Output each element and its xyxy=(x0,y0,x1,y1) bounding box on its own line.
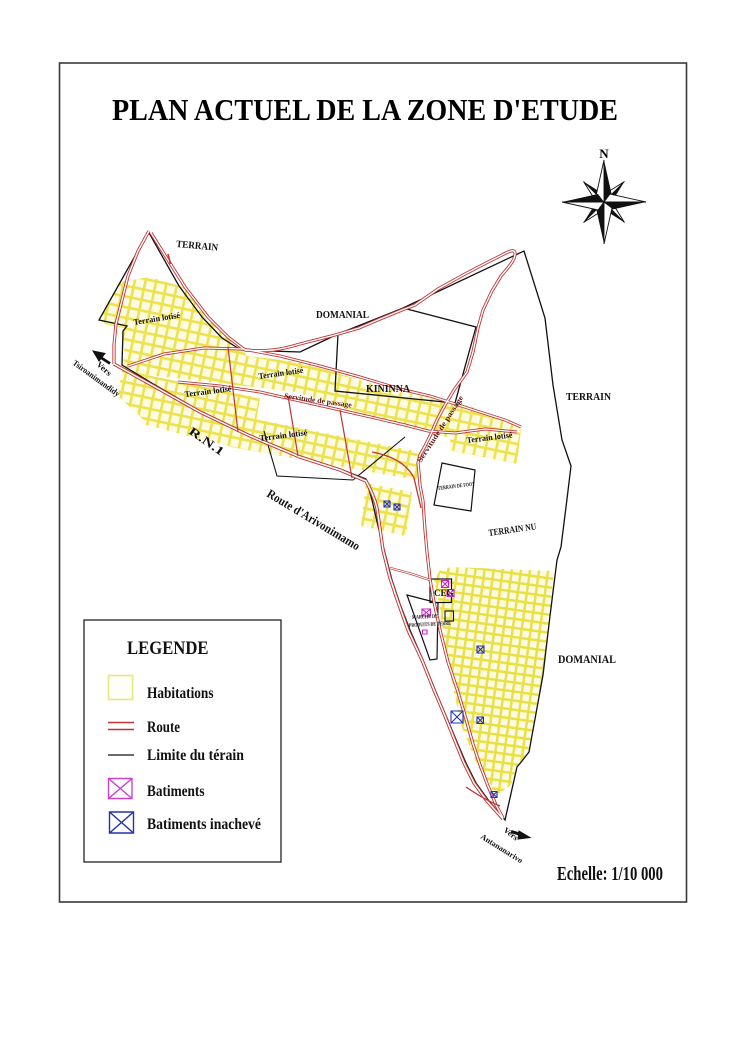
svg-text:Route: Route xyxy=(147,719,180,736)
svg-text:Batiments: Batiments xyxy=(147,783,205,800)
svg-text:TERRAIN: TERRAIN xyxy=(566,391,611,403)
svg-text:DOMANIAL: DOMANIAL xyxy=(558,652,616,666)
svg-text:LEGENDE: LEGENDE xyxy=(127,638,209,659)
svg-text:PLAN ACTUEL DE LA ZONE D'ETUDE: PLAN ACTUEL DE LA ZONE D'ETUDE xyxy=(112,92,618,127)
svg-text:CEG: CEG xyxy=(434,588,454,598)
svg-text:Echelle: 1/10 000: Echelle: 1/10 000 xyxy=(557,864,663,885)
svg-text:TERRAIN: TERRAIN xyxy=(176,239,219,254)
svg-text:DOMANIAL: DOMANIAL xyxy=(316,309,369,321)
svg-text:Limite du térain: Limite du térain xyxy=(147,747,244,764)
svg-text:TERRAIN NU: TERRAIN NU xyxy=(488,522,537,539)
svg-text:MARCHE DE: MARCHE DE xyxy=(412,614,439,621)
svg-text:N: N xyxy=(599,146,609,161)
svg-text:Habitations: Habitations xyxy=(147,685,214,702)
svg-text:KININNA: KININNA xyxy=(366,383,410,395)
svg-text:TERRAIN DE FOOT: TERRAIN DE FOOT xyxy=(438,481,476,491)
svg-text:Batiments inachevé: Batiments inachevé xyxy=(147,816,261,833)
svg-text:Route d'Arivonimamo: Route d'Arivonimamo xyxy=(264,487,362,554)
svg-text:Vers: Vers xyxy=(502,825,520,842)
